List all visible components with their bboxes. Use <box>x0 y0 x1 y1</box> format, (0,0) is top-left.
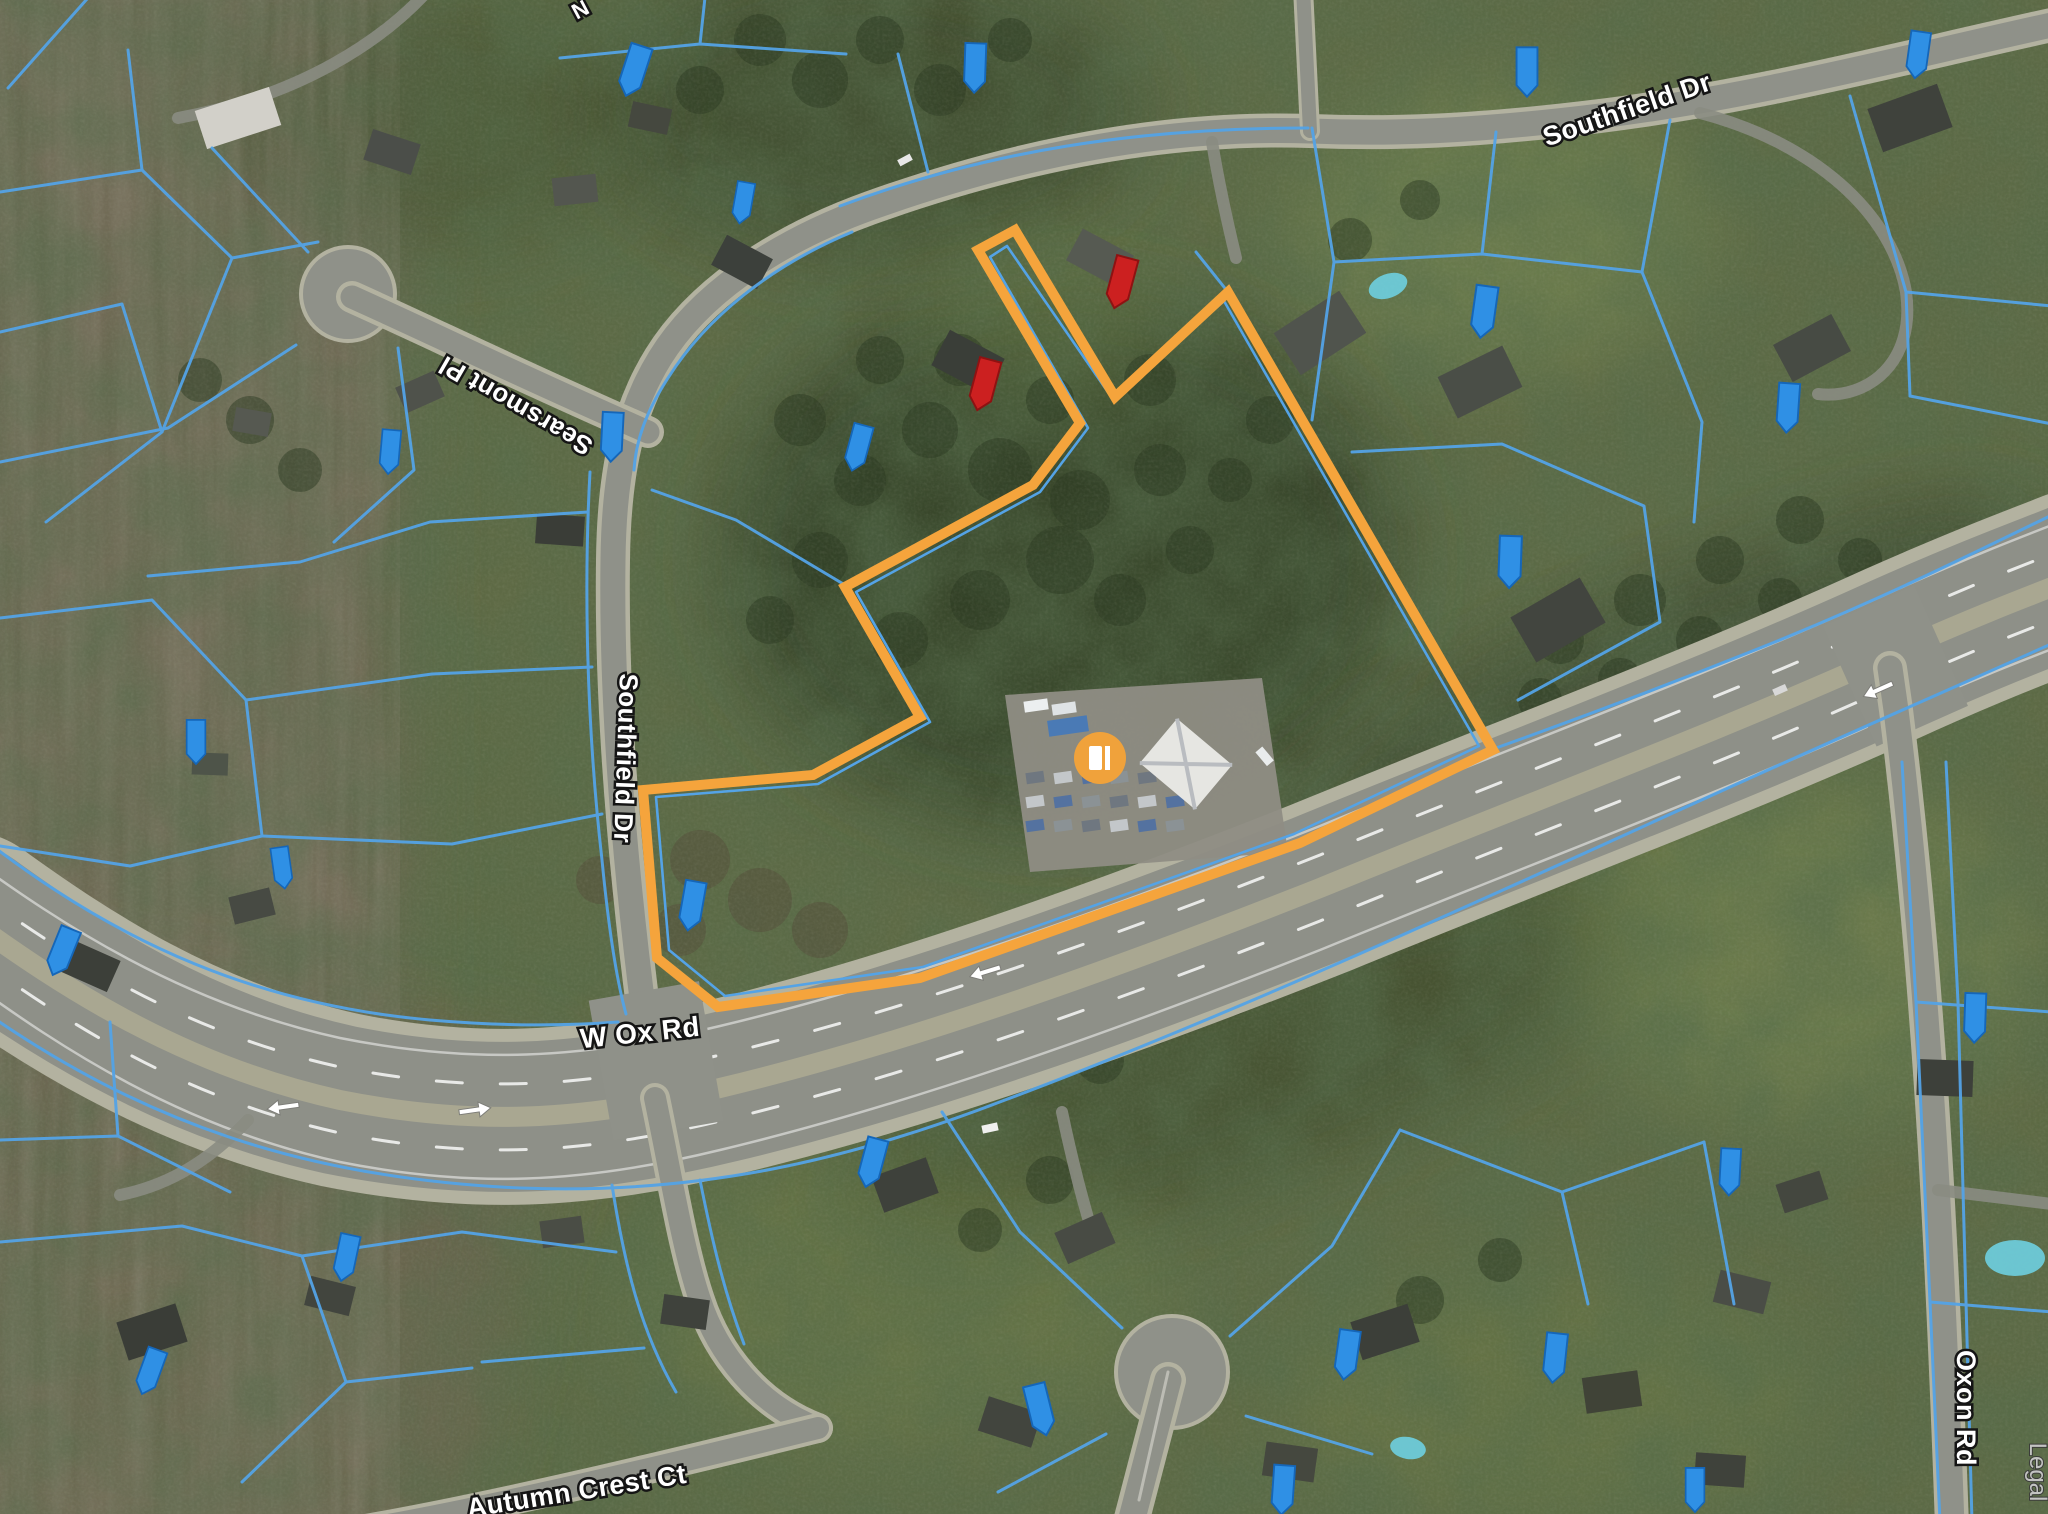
contractor-yard <box>1005 678 1288 872</box>
house-footprint <box>1916 1059 1973 1097</box>
street-label: Southfield Dr <box>608 673 644 844</box>
house-footprint <box>660 1294 710 1330</box>
building-marker[interactable] <box>187 720 206 764</box>
legal-link[interactable]: Legal <box>2024 1443 2048 1502</box>
street-label: Oxon Rd <box>1951 1350 1981 1466</box>
building-marker[interactable] <box>1517 47 1538 96</box>
map-attribution: Legal <box>2024 1443 2048 1502</box>
building-marker[interactable] <box>1686 1468 1705 1512</box>
house-footprint <box>552 174 599 206</box>
swimming-pool <box>1985 1240 2045 1276</box>
building-door-icon <box>1089 746 1102 770</box>
poi-marker[interactable] <box>1074 732 1126 784</box>
map-canvas[interactable]: Southfield DrSearsmont PlSouthfield DrW … <box>0 0 2048 1514</box>
house-footprint <box>535 513 585 546</box>
